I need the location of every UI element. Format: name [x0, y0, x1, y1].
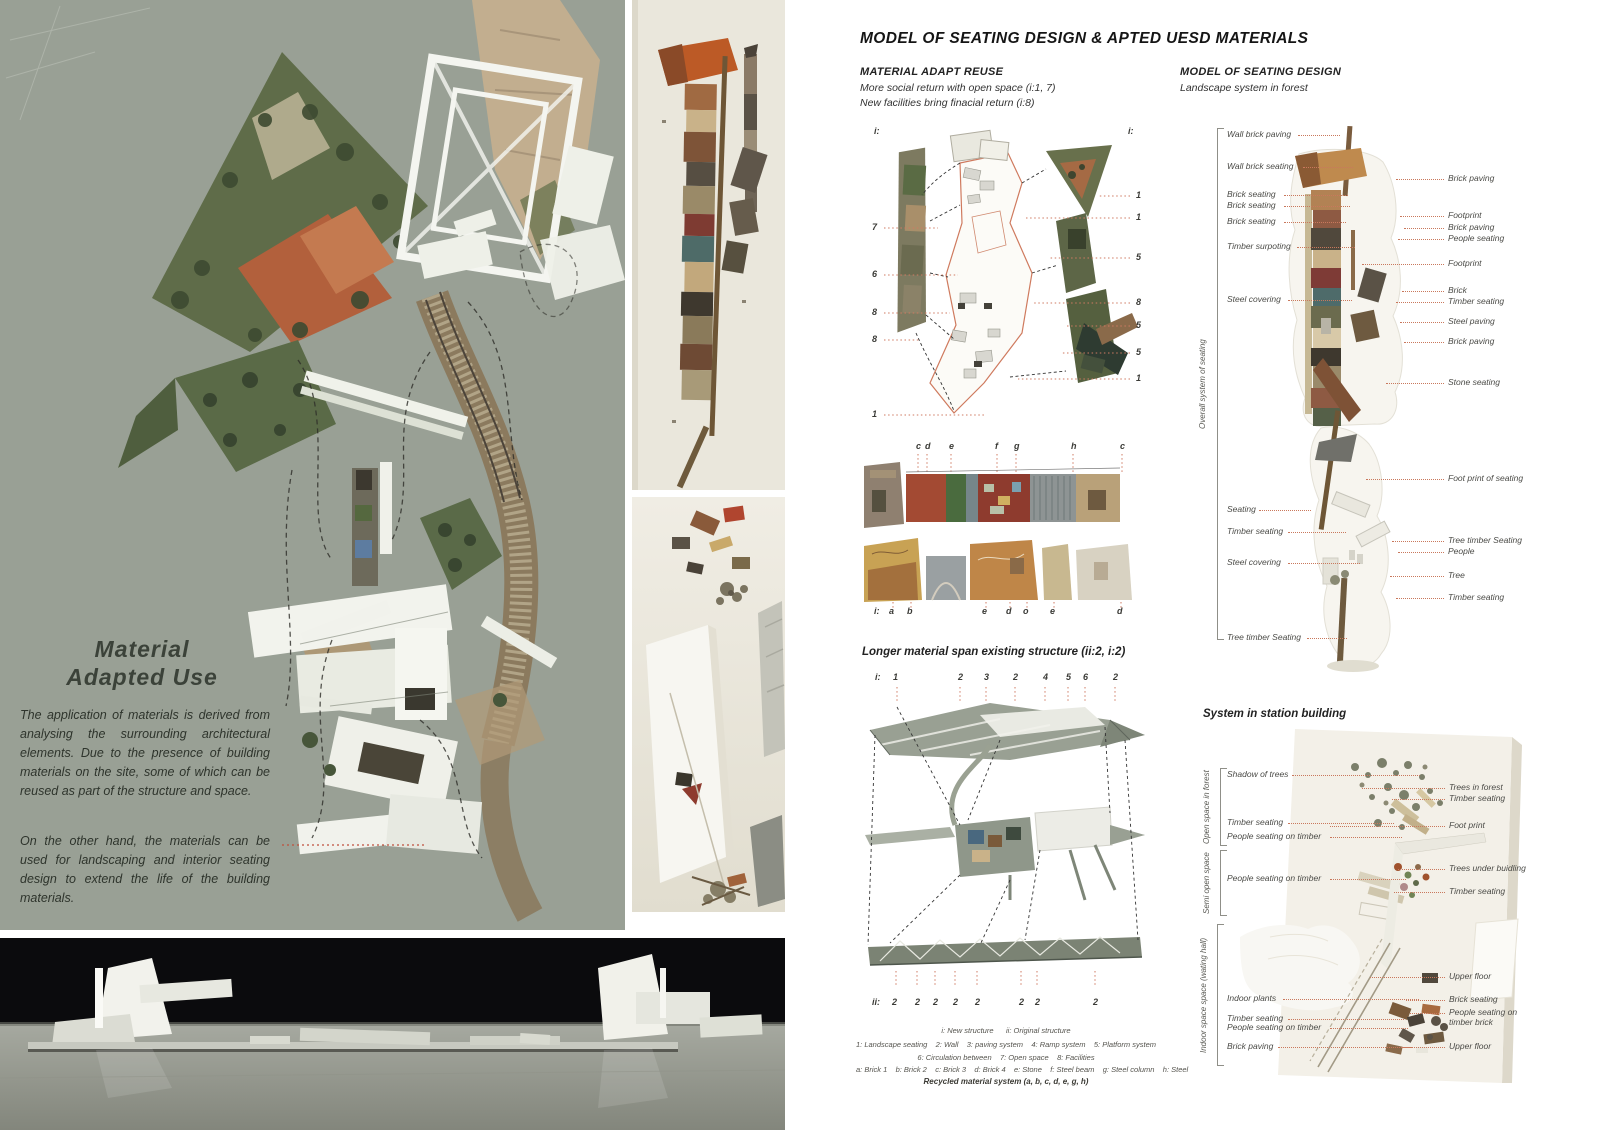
elevation-letter: a	[889, 606, 894, 616]
callout-number: 1	[1136, 373, 1141, 383]
seating-bracket-label: Overall system of seating	[1198, 128, 1207, 640]
callout-number: 1	[872, 409, 877, 419]
leader-line	[1404, 342, 1444, 343]
elevation-letter: d	[1006, 606, 1012, 616]
leader-line	[1392, 541, 1444, 542]
leader-line	[1288, 1019, 1404, 1020]
callout-label: Steel covering	[1227, 558, 1281, 568]
left-panel-paragraph-1: The application of materials is derived …	[20, 706, 270, 801]
seating-bracket	[1217, 128, 1223, 640]
callout-number: 2	[915, 997, 920, 1007]
callout-label: People seating on timber brick	[1449, 1008, 1537, 1028]
elevation-letter: e	[982, 606, 987, 616]
callout-number: 5	[1136, 252, 1141, 262]
leader-line	[1392, 799, 1445, 800]
material-fragments-photo-bottom	[632, 497, 785, 912]
callout-label: Timber seating	[1448, 297, 1504, 307]
callout-number: 6	[1083, 672, 1088, 682]
leader-line	[1406, 1000, 1445, 1001]
leader-line	[1396, 302, 1444, 303]
heading-line1: Material	[16, 636, 268, 664]
callout-number: 1	[1136, 212, 1141, 222]
leader-line	[1366, 479, 1444, 480]
callout-number: 2	[1093, 997, 1098, 1007]
adapt-exploded-diagram	[860, 125, 1150, 435]
station-group-label: Open space in forest	[1202, 768, 1211, 846]
leader-line	[1398, 239, 1444, 240]
leader-line	[1402, 1047, 1445, 1048]
callout-label: Steel paving	[1448, 317, 1495, 327]
presentation-board: Material Adapted Use The application of …	[0, 0, 1600, 1130]
index-label: ii:	[872, 997, 880, 1007]
callout-label: People seating on timber	[1227, 874, 1321, 884]
leader-line	[1362, 788, 1445, 789]
callout-label: Timber surpoting	[1227, 242, 1291, 252]
material-fragments-art-bottom	[632, 497, 785, 912]
callout-label: Foot print	[1449, 821, 1485, 831]
callout-label: Tree timber Seating	[1448, 536, 1522, 546]
callout-number: 8	[872, 307, 877, 317]
leader-line	[1292, 775, 1420, 776]
callout-label: Indoor plants	[1227, 994, 1276, 1004]
leader-line	[1362, 264, 1444, 265]
model-elevation-art	[0, 938, 785, 1130]
station-building-collage	[1240, 715, 1600, 1090]
seating-heading: MODEL OF SEATING DESIGN	[1180, 66, 1341, 78]
callout-number: 3	[984, 672, 989, 682]
leader-line	[1284, 206, 1350, 207]
callout-label: Trees under buidling	[1449, 864, 1526, 874]
callout-label: Tree timber Seating	[1227, 633, 1301, 643]
callout-label: Footprint	[1448, 259, 1482, 269]
elevation-letter: b	[907, 606, 913, 616]
callout-label: Timber seating	[1449, 794, 1505, 804]
leader-line	[1297, 247, 1355, 248]
leader-line	[1398, 869, 1445, 870]
leader-line	[1259, 510, 1311, 511]
adapt-subline-2: New facilities bring finacial return (i:…	[860, 97, 1034, 109]
callout-number: 2	[1019, 997, 1024, 1007]
legend-line-5: Recycled material system (a, b, c, d, e,…	[856, 1077, 1156, 1086]
leader-line	[1402, 291, 1444, 292]
elevation-strip-diagram	[860, 450, 1150, 615]
model-elevation-photo	[0, 938, 785, 1130]
index-label: i:	[874, 606, 880, 616]
left-panel-heading: Material Adapted Use	[16, 636, 268, 691]
leader-line	[1400, 216, 1444, 217]
callout-label: Brick	[1448, 286, 1467, 296]
callout-label: Brick seating	[1227, 217, 1276, 227]
leader-line	[1410, 1013, 1445, 1014]
callout-number: 8	[1136, 297, 1141, 307]
legend-line-2: 1: Landscape seating 2: Wall 3: paving s…	[856, 1040, 1156, 1049]
legend-line-1: i: New structure ii: Original structure	[856, 1026, 1156, 1035]
callout-label: Wall brick seating	[1227, 162, 1293, 172]
callout-label: Timber seating	[1227, 527, 1283, 537]
station-bracket-semi-open	[1220, 850, 1226, 916]
leader-line	[1283, 999, 1419, 1000]
station-bracket-indoor	[1217, 924, 1223, 1066]
adapt-subline-1: More social return with open space (i:1,…	[860, 82, 1056, 94]
leader-line	[1398, 552, 1444, 553]
station-group-label: Indoor space space (wating hall)	[1199, 924, 1208, 1066]
leader-line	[1288, 300, 1352, 301]
callout-label: Timber seating	[1227, 818, 1283, 828]
callout-label: Seating	[1227, 505, 1256, 515]
span-exploded-diagram	[860, 685, 1150, 995]
index-label: i:	[875, 672, 881, 682]
span-heading: Longer material span existing structure …	[862, 646, 1125, 658]
leader-line	[1370, 977, 1445, 978]
leader-line	[1396, 598, 1444, 599]
seating-subheading: Landscape system in forest	[1180, 82, 1308, 94]
leader-line	[1394, 892, 1445, 893]
legend-line-3: 6: Circulation between 7: Open space 8: …	[856, 1053, 1156, 1062]
leader-line	[1288, 532, 1346, 533]
callout-label: People seating on timber	[1227, 1023, 1321, 1033]
index-label: i:	[874, 126, 880, 136]
callout-label: Timber seating	[1449, 887, 1505, 897]
callout-number: 2	[1113, 672, 1118, 682]
callout-number: 4	[1043, 672, 1048, 682]
leader-line	[1386, 383, 1444, 384]
leader-line	[1400, 322, 1444, 323]
callout-number: 2	[1013, 672, 1018, 682]
leader-line	[1330, 879, 1406, 880]
leader-line	[1396, 179, 1444, 180]
callout-label: Timber seating	[1448, 593, 1504, 603]
callout-label: Upper floor	[1449, 1042, 1491, 1052]
leader-line	[1390, 576, 1444, 577]
leader-line	[1278, 1047, 1412, 1048]
callout-number: 2	[953, 997, 958, 1007]
leader-line	[1330, 826, 1445, 827]
leader-line	[1330, 1028, 1408, 1029]
material-fragments-art-top	[632, 0, 785, 490]
callout-label: Foot print of seating	[1448, 474, 1523, 484]
leader-line	[1307, 638, 1347, 639]
elevation-letter: o	[1023, 606, 1029, 616]
heading-line2: Adapted Use	[16, 664, 268, 692]
leader-line	[1303, 167, 1353, 168]
callout-number: 8	[872, 334, 877, 344]
legend-line-4: a: Brick 1 b: Brick 2 c: Brick 3 d: Bric…	[856, 1065, 1156, 1074]
callout-label: Brick paving	[1448, 174, 1494, 184]
leader-line	[1330, 837, 1402, 838]
callout-label: Brick paving	[1227, 1042, 1273, 1052]
callout-number: 7	[872, 222, 877, 232]
site-model-photo: Material Adapted Use The application of …	[0, 0, 625, 930]
station-bracket-open-space	[1220, 768, 1226, 846]
callout-label: Upper floor	[1449, 972, 1491, 982]
callout-label: Brick paving	[1448, 223, 1494, 233]
callout-number: 2	[958, 672, 963, 682]
callout-label: Steel covering	[1227, 295, 1281, 305]
callout-number: 5	[1136, 320, 1141, 330]
callout-number: 2	[1035, 997, 1040, 1007]
callout-label: People seating	[1448, 234, 1504, 244]
callout-label: Trees in forest	[1449, 783, 1503, 793]
material-fragments-photo-top	[632, 0, 785, 490]
leader-line	[1288, 823, 1394, 824]
callout-label: Brick seating	[1227, 190, 1276, 200]
leader-line	[1284, 222, 1346, 223]
callout-number: 2	[933, 997, 938, 1007]
callout-label: Shadow of trees	[1227, 770, 1288, 780]
leader-line	[1284, 195, 1348, 196]
page-title: MODEL OF SEATING DESIGN & APTED UESD MAT…	[860, 30, 1308, 48]
elevation-letter: d	[1117, 606, 1123, 616]
leader-line	[1404, 228, 1444, 229]
callout-number: 2	[892, 997, 897, 1007]
callout-label: Stone seating	[1448, 378, 1500, 388]
callout-label: People	[1448, 547, 1474, 557]
callout-label: Wall brick paving	[1227, 130, 1291, 140]
callout-number: 5	[1136, 347, 1141, 357]
callout-label: Footprint	[1448, 211, 1482, 221]
callout-label: Brick seating	[1227, 201, 1276, 211]
index-label: i:	[1128, 126, 1134, 136]
callout-number: 5	[1066, 672, 1071, 682]
callout-label: Tree	[1448, 571, 1465, 581]
adapt-heading: MATERIAL ADAPT REUSE	[860, 66, 1003, 78]
callout-number: 2	[975, 997, 980, 1007]
elevation-letter: e	[1050, 606, 1055, 616]
callout-number: 1	[893, 672, 898, 682]
left-panel-paragraph-2: On the other hand, the materials can be …	[20, 832, 270, 908]
callout-number: 1	[1136, 190, 1141, 200]
callout-label: People seating on timber	[1227, 832, 1321, 842]
leader-line	[1298, 135, 1340, 136]
callout-label: Brick paving	[1448, 337, 1494, 347]
station-group-label: Semi open space	[1202, 850, 1211, 916]
callout-label: Brick seating	[1449, 995, 1498, 1005]
callout-number: 6	[872, 269, 877, 279]
leader-line	[1288, 563, 1360, 564]
